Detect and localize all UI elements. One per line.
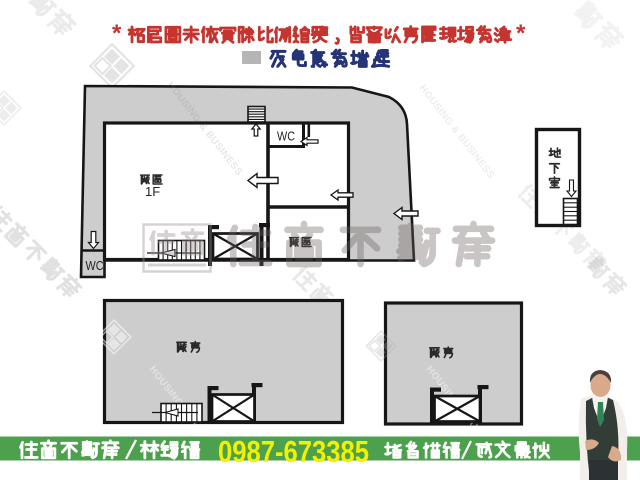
svg-text:1F: 1F bbox=[145, 184, 160, 199]
svg-text:WC: WC bbox=[86, 258, 104, 273]
svg-text:*: * bbox=[112, 20, 122, 47]
svg-text:HOUSING & BUSINESS: HOUSING & BUSINESS bbox=[417, 83, 497, 181]
svg-text:WC: WC bbox=[277, 129, 295, 144]
svg-text:*: * bbox=[516, 20, 526, 47]
svg-text:0987-673385: 0987-673385 bbox=[218, 434, 369, 469]
